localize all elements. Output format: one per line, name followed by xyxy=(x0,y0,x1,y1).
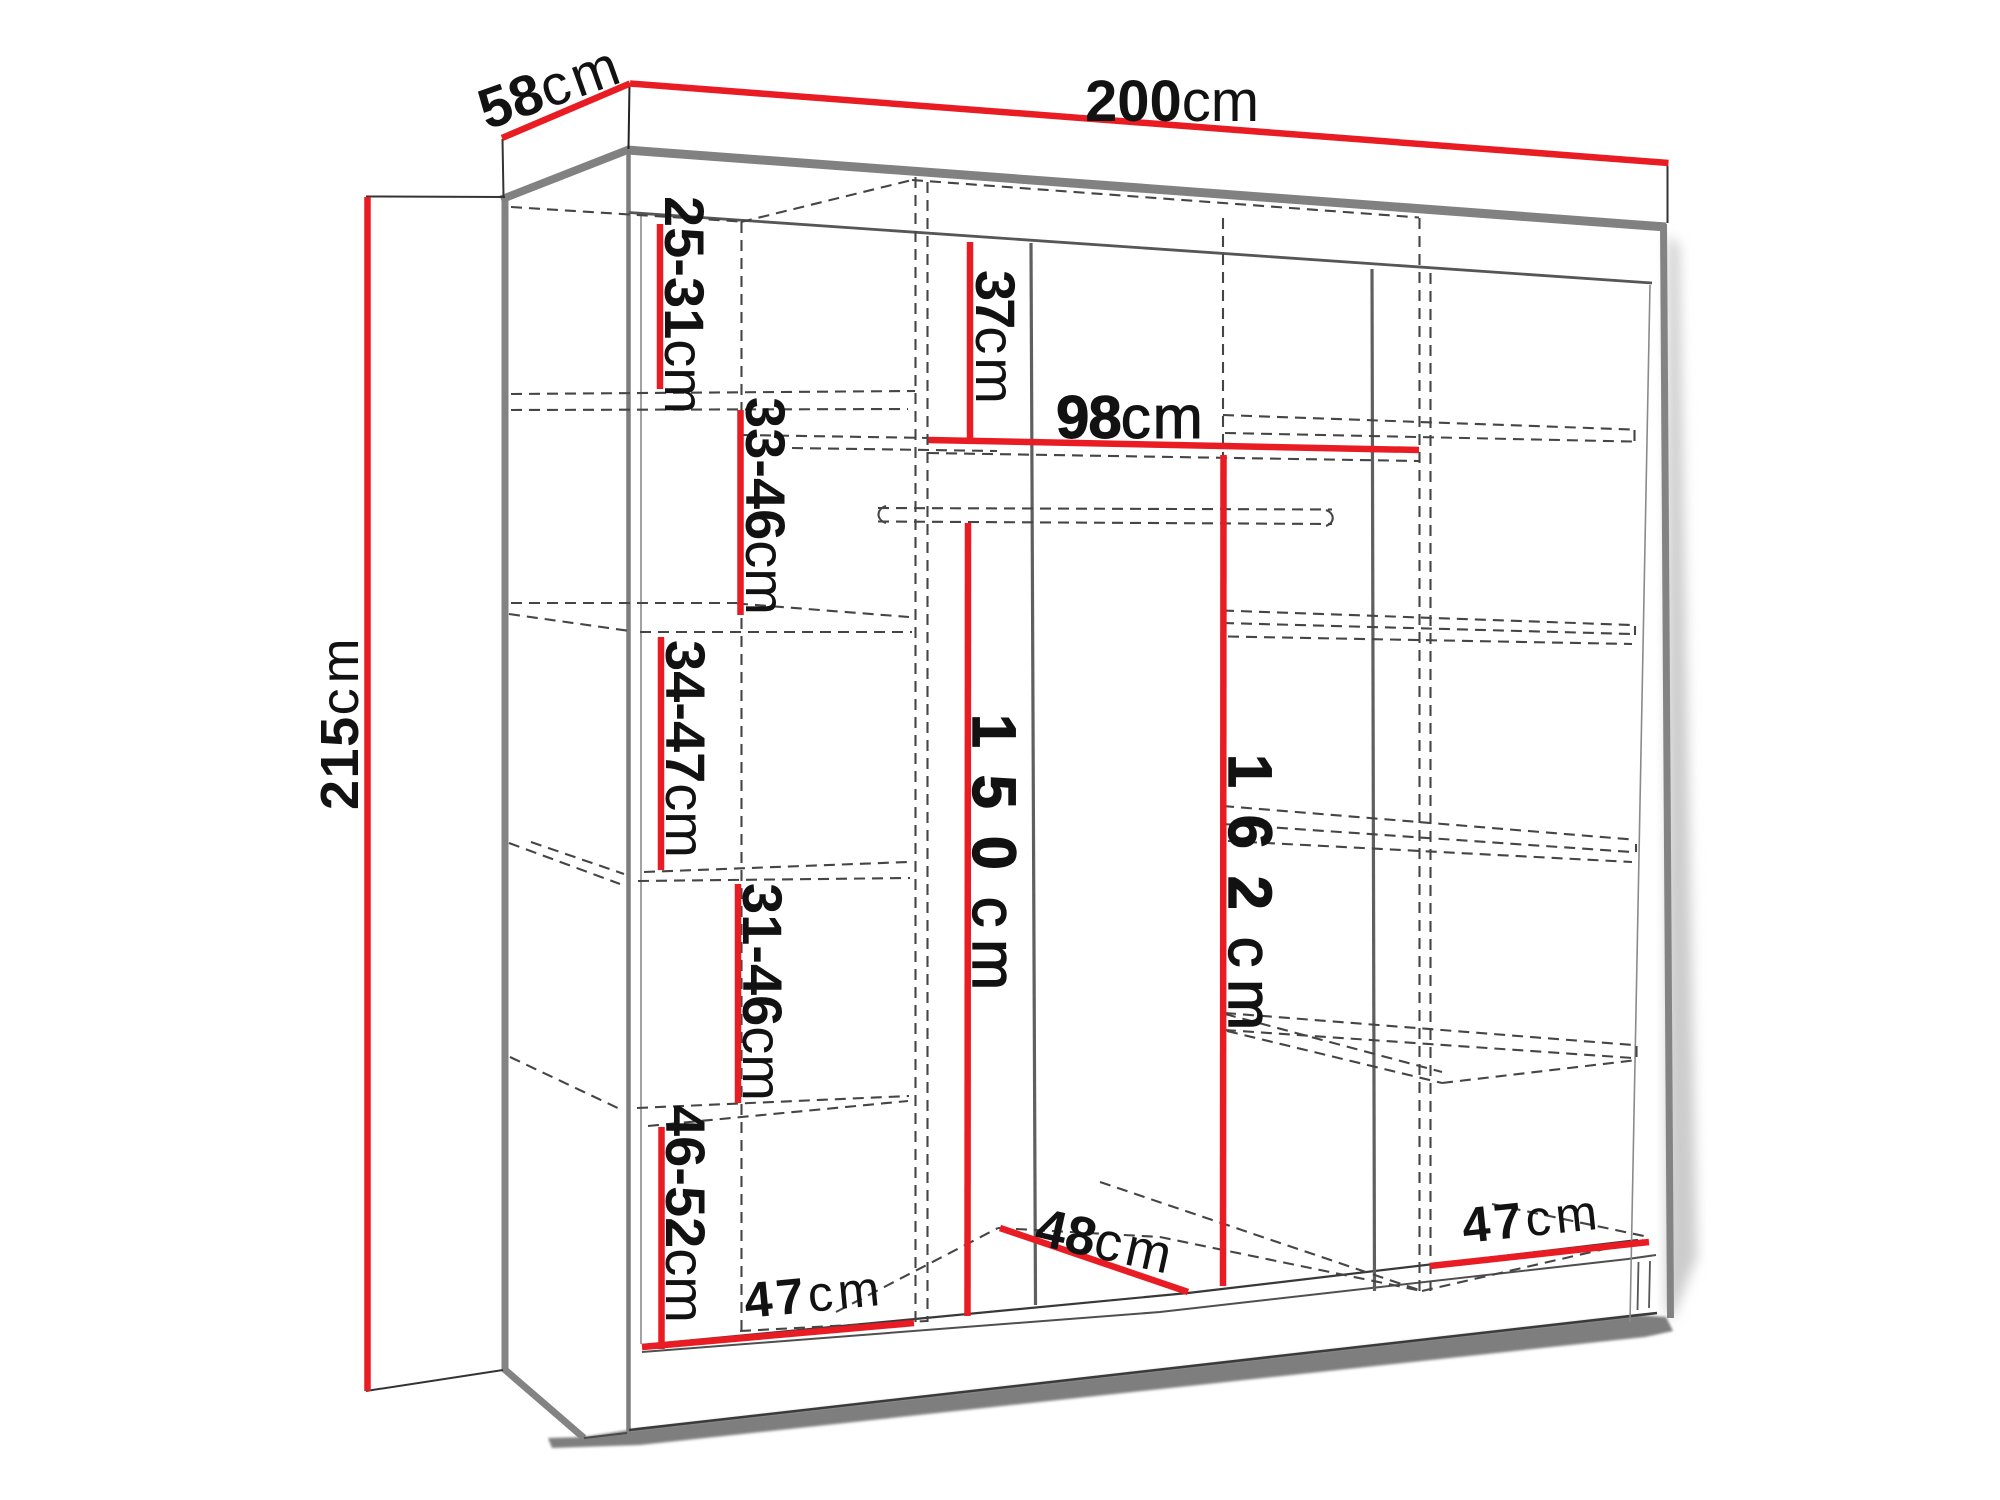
svg-text:31-46cm: 31-46cm xyxy=(731,883,794,1101)
svg-text:162cm: 162cm xyxy=(1216,754,1284,1042)
svg-text:34-47cm: 34-47cm xyxy=(654,640,717,858)
svg-text:200cm: 200cm xyxy=(1085,69,1259,134)
svg-text:46-52cm: 46-52cm xyxy=(654,1105,717,1323)
svg-text:150cm: 150cm xyxy=(960,714,1028,1002)
svg-text:215cm: 215cm xyxy=(310,633,370,810)
svg-text:98cm: 98cm xyxy=(1056,384,1205,451)
svg-text:25-31cm: 25-31cm xyxy=(653,196,716,414)
svg-text:33-46cm: 33-46cm xyxy=(734,397,797,615)
svg-text:37cm: 37cm xyxy=(964,270,1027,407)
